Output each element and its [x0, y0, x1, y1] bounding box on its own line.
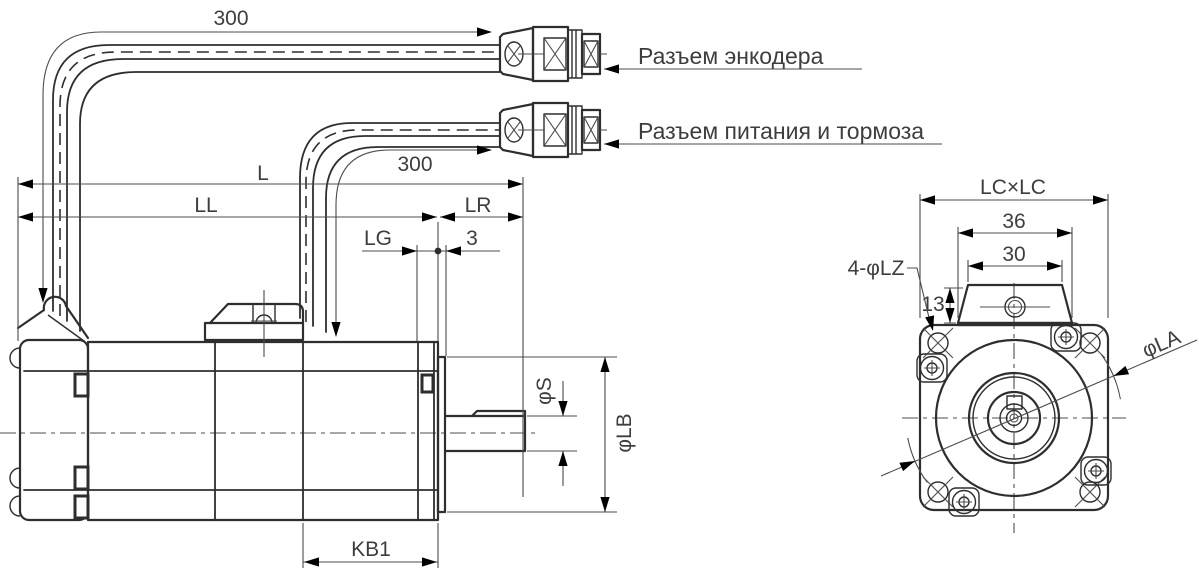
dim-label-L: L	[257, 162, 269, 185]
dim-LG-and-3: LG 3	[362, 227, 500, 256]
encoder-connector-callout: Разъем энкодера	[604, 43, 862, 74]
encoder-connector	[500, 27, 607, 81]
dim-label-4-phiLZ: 4-φLZ	[848, 257, 905, 280]
power-connector-callout: Разъем питания и тормоза	[604, 118, 942, 149]
side-extension-lines	[18, 177, 523, 568]
power-connector-label: Разъем питания и тормоза	[638, 118, 924, 144]
motor-shaft	[445, 411, 525, 451]
dim-label-LCxLC: LC×LC	[980, 176, 1046, 199]
dim-label-3: 3	[466, 227, 478, 250]
power-brake-connector	[500, 103, 607, 157]
dim-L: L	[18, 162, 523, 189]
dim-phiLA: φLA	[881, 326, 1197, 483]
dim-label-LG: LG	[364, 227, 392, 250]
motor-front-view: LC×LC 36 30 13	[848, 176, 1197, 533]
dim-label-36: 36	[1002, 210, 1025, 233]
dim-label-phiS: φS	[533, 377, 556, 405]
drawing-canvas: 300 300 Разъем энкодера Разъем питания и…	[0, 0, 1199, 577]
dim-label-LR: LR	[465, 194, 492, 217]
dim-label-KB1: KB1	[351, 538, 391, 561]
dim-KB1: KB1	[303, 538, 438, 567]
motor-technical-drawing: 300 300 Разъем энкодера Разъем питания и…	[0, 0, 1199, 577]
dim-30: 30	[968, 243, 1062, 282]
dim-label-LL: LL	[194, 194, 217, 217]
dim-label-300-encoder: 300	[213, 7, 248, 30]
dim-label-phiLB: φLB	[613, 413, 636, 452]
motor-side-view: 300 300 Разъем энкодера Разъем питания и…	[0, 7, 942, 568]
terminal-box-front	[957, 285, 1073, 324]
dim-label-13: 13	[921, 293, 944, 316]
dim-phiS: φS	[527, 377, 577, 486]
dim-label-30: 30	[1002, 243, 1025, 266]
terminal-box-side	[205, 290, 303, 357]
dim-LR: LR	[440, 194, 523, 222]
dim-label-phiLA: φLA	[1139, 326, 1184, 363]
rear-encoder-cover	[10, 297, 88, 520]
motor-body	[24, 342, 438, 520]
encoder-connector-label: Разъем энкодера	[638, 43, 824, 69]
dim-label-300-power: 300	[397, 153, 432, 176]
encoder-cable	[53, 45, 500, 331]
flange-spigot	[438, 357, 445, 512]
